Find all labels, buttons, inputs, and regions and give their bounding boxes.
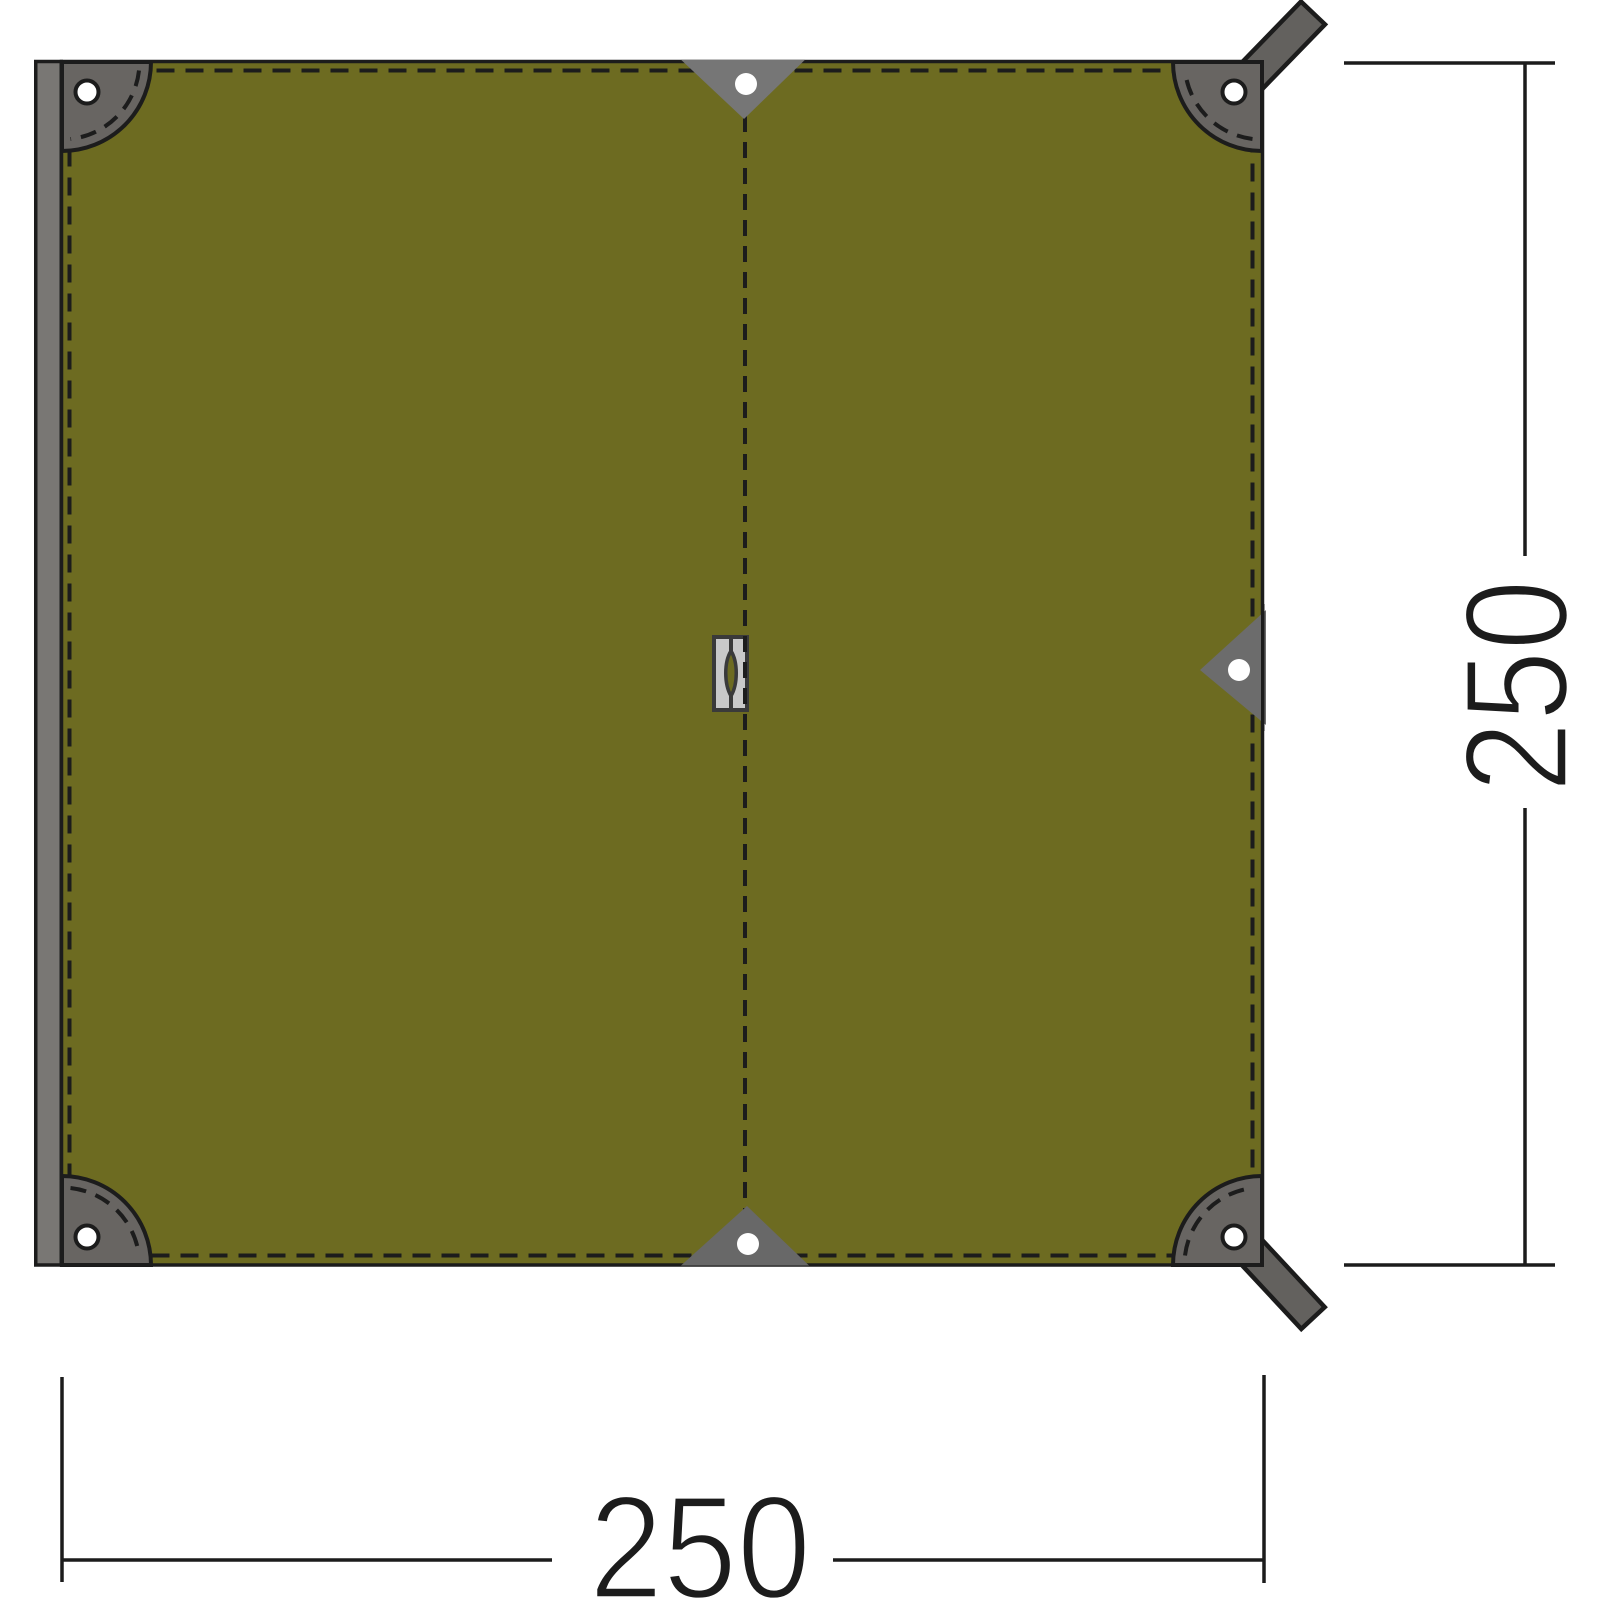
svg-text:250: 250 — [1435, 580, 1599, 793]
svg-text:250: 250 — [589, 1466, 811, 1600]
